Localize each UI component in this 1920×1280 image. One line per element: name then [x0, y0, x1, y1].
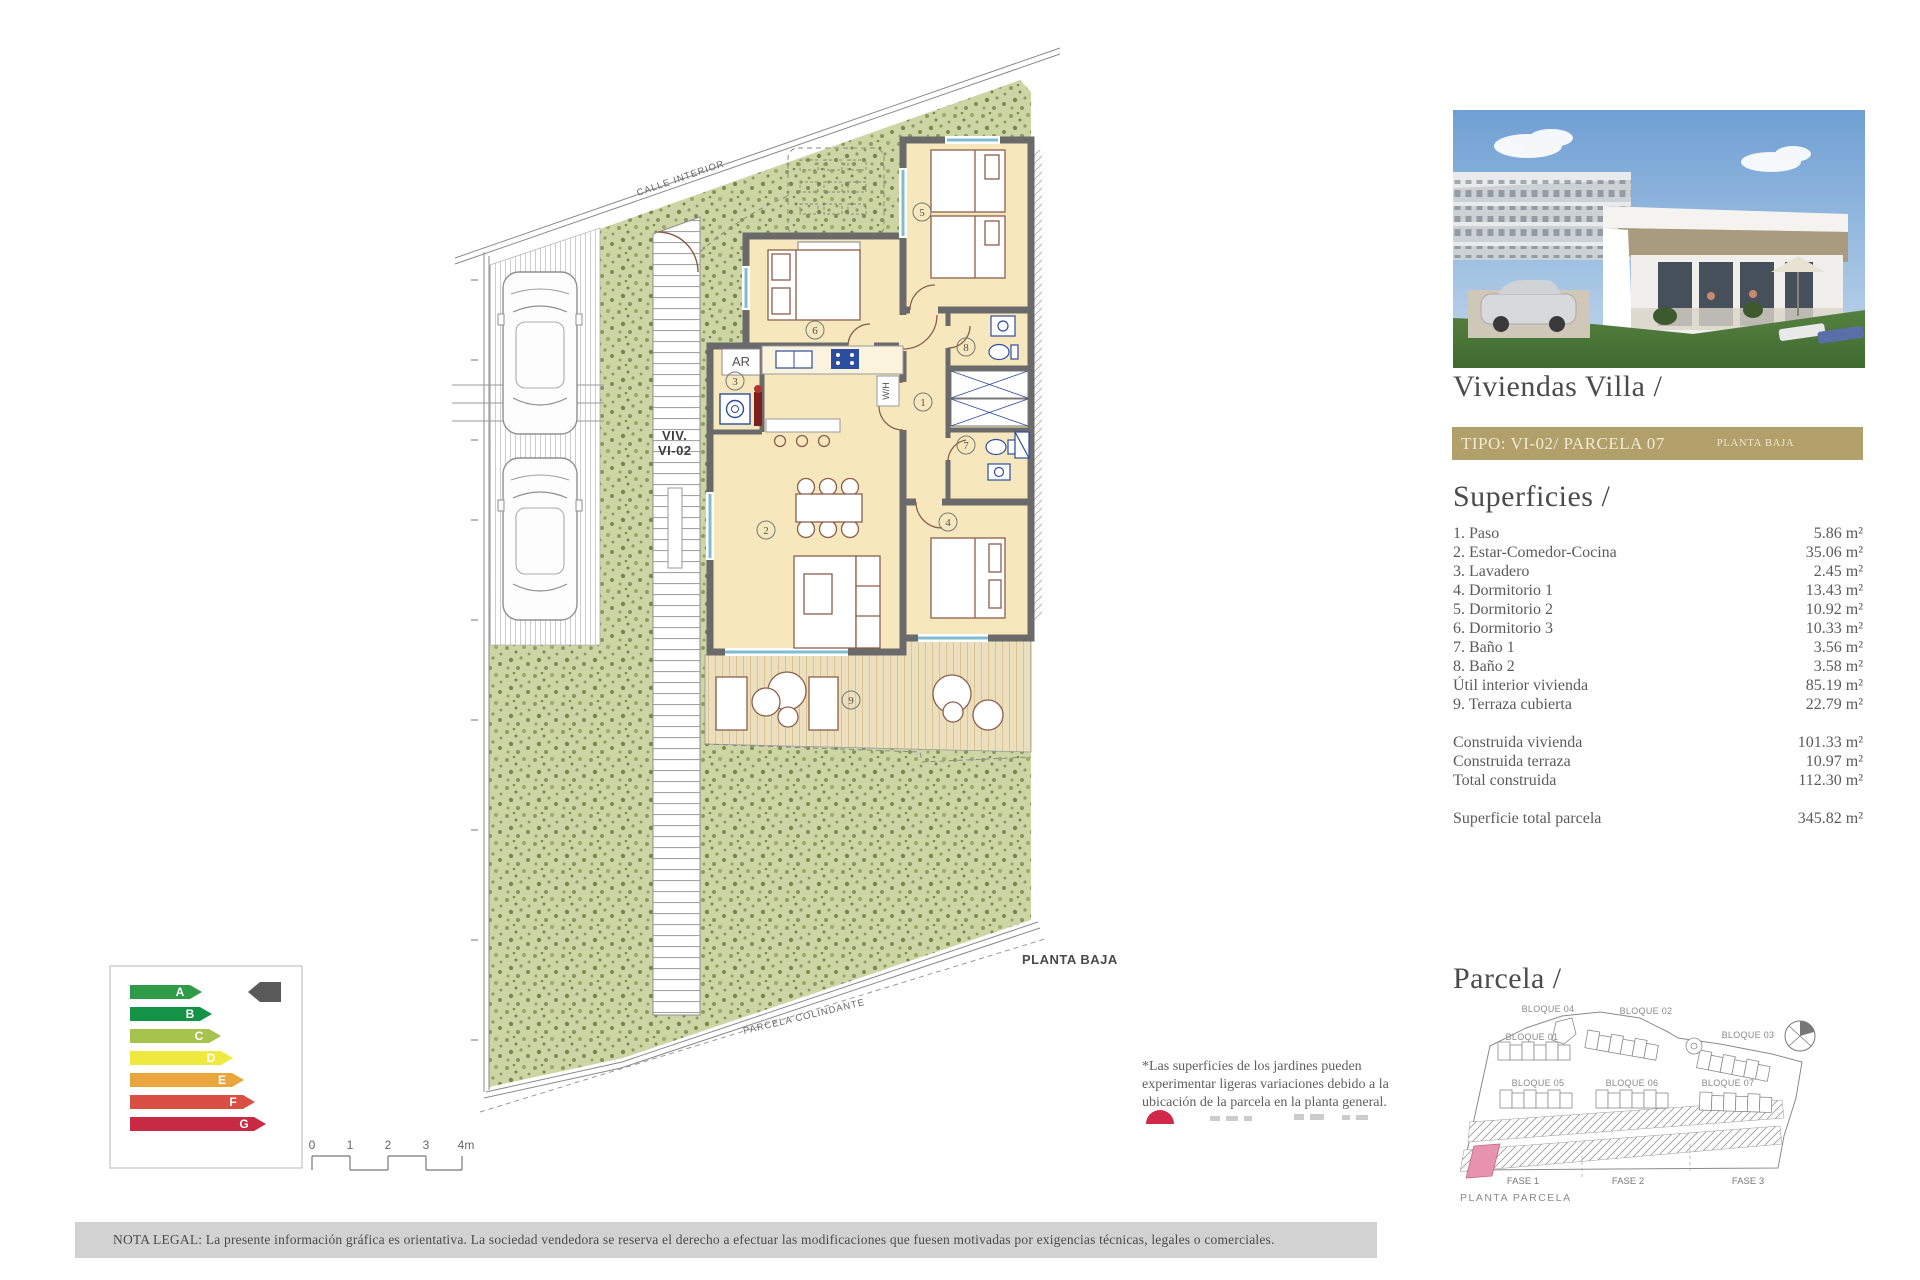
highlighted-parcel — [1466, 1144, 1500, 1178]
site-plan: BLOQUE 04 BLOQUE 02 BLOQUE 01 BLOQUE 03 … — [1460, 1004, 1815, 1187]
exterior-unit — [668, 488, 682, 568]
planta-parcela-caption: PLANTA PARCELA — [1460, 1192, 1572, 1204]
planta-baja-label: PLANTA BAJA — [1022, 952, 1118, 967]
svg-text:FASE 2: FASE 2 — [1612, 1176, 1644, 1187]
viv-label-2: VI-02 — [658, 443, 692, 458]
svg-text:FASE 1: FASE 1 — [1507, 1176, 1539, 1187]
sofa — [794, 556, 880, 648]
svg-text:BLOQUE 06: BLOQUE 06 — [1606, 1078, 1659, 1088]
table-row: 8. Baño 23.58 m² — [1453, 657, 1863, 676]
svg-text:4m: 4m — [458, 1138, 475, 1152]
svg-text:4: 4 — [945, 517, 951, 529]
table-row-total: Superficie total parcela345.82 m² — [1453, 809, 1863, 828]
tipo-bar: TIPO: VI-02/ PARCELA 07 PLANTA BAJA — [1452, 427, 1863, 460]
table-row: 9. Terraza cubierta22.79 m² — [1453, 695, 1863, 714]
bed-dorm3 — [768, 242, 860, 320]
svg-text:BLOQUE 01: BLOQUE 01 — [1506, 1032, 1559, 1042]
svg-text:FASE 3: FASE 3 — [1732, 1176, 1764, 1187]
table-row: Útil interior vivienda85.19 m² — [1453, 676, 1863, 695]
viv-label-1: VIV. — [662, 428, 687, 443]
table-row: Construida vivienda101.33 m² — [1453, 733, 1863, 752]
scale-bar: 0 1 2 3 4m — [309, 1138, 475, 1170]
svg-text:A: A — [176, 985, 185, 999]
svg-text:BLOQUE 02: BLOQUE 02 — [1620, 1006, 1673, 1016]
legal-note-text: NOTA LEGAL: La presente información gráf… — [113, 1232, 1275, 1248]
walkway-stairs — [653, 217, 700, 1015]
superficies-table: 1. Paso5.86 m² 2. Estar-Comedor-Cocina35… — [1453, 524, 1863, 828]
svg-text:B: B — [186, 1007, 195, 1021]
svg-text:2: 2 — [385, 1138, 392, 1152]
superficies-heading: Superficies / — [1453, 480, 1610, 514]
villa-photo — [1453, 110, 1865, 368]
table-row: 2. Estar-Comedor-Cocina35.06 m² — [1453, 543, 1863, 562]
svg-text:1: 1 — [920, 397, 926, 409]
washer-icon — [720, 394, 750, 424]
table-row: Construida terraza10.97 m² — [1453, 752, 1863, 771]
table-row: 6. Dormitorio 310.33 m² — [1453, 619, 1863, 638]
table-row: 1. Paso5.86 m² — [1453, 524, 1863, 543]
svg-text:BLOQUE 03: BLOQUE 03 — [1722, 1030, 1775, 1040]
parking-area — [452, 228, 604, 645]
energy-label: A B C D E F G — [110, 966, 302, 1168]
garden-note: *Las superficies de los jardines pueden … — [1142, 1058, 1402, 1112]
table-row: Total construida112.30 m² — [1453, 771, 1863, 790]
ar-label: AR — [732, 354, 750, 369]
svg-text:3: 3 — [732, 376, 738, 388]
table-row: 5. Dormitorio 210.92 m² — [1453, 600, 1863, 619]
svg-text:0: 0 — [309, 1138, 316, 1152]
closets — [951, 371, 1028, 426]
terrace — [705, 641, 1031, 762]
svg-text:3: 3 — [423, 1138, 430, 1152]
svg-text:G: G — [239, 1117, 248, 1131]
note-legend — [1146, 1110, 1368, 1124]
car-top-icon — [498, 272, 582, 434]
svg-text:1: 1 — [347, 1138, 354, 1152]
svg-text:BLOQUE 07: BLOQUE 07 — [1702, 1078, 1755, 1088]
tipo-label: TIPO: VI-02/ PARCELA 07 — [1461, 434, 1665, 454]
compass-icon — [1785, 1021, 1815, 1051]
svg-text:5: 5 — [919, 207, 925, 219]
parcela-heading: Parcela / — [1453, 962, 1562, 996]
table-row: 7. Baño 13.56 m² — [1453, 638, 1863, 657]
dining-set — [796, 479, 862, 538]
roundabout-icon — [1686, 1038, 1702, 1054]
stove-icon — [831, 349, 859, 369]
svg-text:9: 9 — [848, 695, 854, 707]
table-row: 4. Dormitorio 113.43 m² — [1453, 581, 1863, 600]
svg-text:7: 7 — [963, 440, 969, 452]
table-row: 3. Lavadero2.45 m² — [1453, 562, 1863, 581]
svg-text:BLOQUE 05: BLOQUE 05 — [1512, 1078, 1565, 1088]
svg-text:F: F — [229, 1095, 236, 1109]
brochure-page: AR W/H — [0, 0, 1920, 1280]
svg-text:2: 2 — [763, 525, 769, 537]
wh-label: W/H — [881, 382, 891, 400]
bed-dorm1 — [931, 538, 1005, 618]
svg-text:BLOQUE 04: BLOQUE 04 — [1522, 1004, 1575, 1014]
tipo-planta-label: PLANTA BAJA — [1717, 438, 1795, 449]
svg-text:E: E — [218, 1073, 226, 1087]
car-top-icon — [498, 458, 582, 620]
legend-dot-icon — [1146, 1110, 1174, 1124]
svg-text:D: D — [207, 1051, 216, 1065]
fase-labels: FASE 1 FASE 2 FASE 3 — [1507, 1176, 1764, 1187]
svg-text:8: 8 — [963, 342, 969, 354]
page-title: Viviendas Villa / — [1453, 370, 1662, 404]
svg-text:6: 6 — [812, 325, 818, 337]
legal-note-bar: NOTA LEGAL: La presente información gráf… — [75, 1222, 1377, 1258]
svg-text:C: C — [195, 1029, 204, 1043]
